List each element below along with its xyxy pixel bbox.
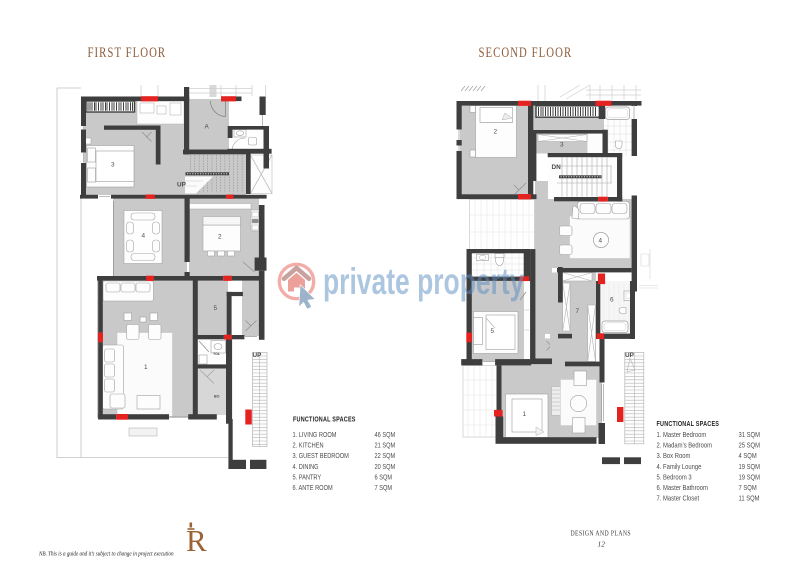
svg-text:4: 4	[599, 238, 603, 245]
svg-text:4. DINING: 4. DINING	[293, 463, 319, 471]
svg-text:TOL: TOL	[213, 352, 221, 356]
svg-text:21 SQM: 21 SQM	[375, 442, 396, 450]
svg-text:11 SQM: 11 SQM	[739, 495, 760, 503]
svg-text:UP: UP	[253, 352, 263, 359]
svg-text:FUNCTIONAL SPACES: FUNCTIONAL SPACES	[657, 420, 720, 428]
svg-text:19 SQM: 19 SQM	[739, 463, 760, 471]
svg-text:7: 7	[576, 308, 580, 315]
svg-text:2. KITCHEN: 2. KITCHEN	[293, 442, 324, 450]
svg-text:7 SQM: 7 SQM	[375, 485, 393, 493]
svg-text:A: A	[205, 124, 210, 131]
svg-text:25 SQM: 25 SQM	[739, 442, 760, 450]
svg-text:4 SQM: 4 SQM	[739, 453, 757, 461]
svg-text:private property: private property	[323, 261, 524, 302]
svg-text:4: 4	[142, 233, 146, 240]
svg-text:NB. This is a guide and it’s s: NB. This is a guide and it’s subject to …	[38, 551, 174, 558]
svg-text:FUNCTIONAL SPACES: FUNCTIONAL SPACES	[293, 416, 356, 424]
svg-text:DESIGN AND PLANS: DESIGN AND PLANS	[571, 530, 632, 538]
svg-text:2: 2	[218, 234, 222, 241]
svg-text:FIRST FLOOR: FIRST FLOOR	[88, 44, 167, 60]
svg-text:6 SQM: 6 SQM	[375, 474, 393, 482]
svg-text:DN: DN	[552, 164, 562, 171]
svg-text:20 SQM: 20 SQM	[375, 463, 396, 471]
svg-text:19 SQM: 19 SQM	[739, 474, 760, 482]
svg-text:3: 3	[111, 162, 115, 169]
svg-text:7 SQM: 7 SQM	[739, 485, 757, 493]
svg-text:7. Master Closet: 7. Master Closet	[657, 495, 700, 503]
svg-text:2. Madam’s Bedroom: 2. Madam’s Bedroom	[657, 442, 713, 450]
svg-text:6. Master Bathroom: 6. Master Bathroom	[657, 485, 708, 493]
svg-text:22 SQM: 22 SQM	[375, 453, 396, 461]
svg-text:6. ANTE ROOM: 6. ANTE ROOM	[293, 485, 333, 493]
svg-text:1: 1	[144, 364, 148, 371]
svg-text:5. Bedroom 3: 5. Bedroom 3	[657, 474, 693, 482]
svg-text:UP: UP	[625, 352, 635, 359]
svg-text:46 SQM: 46 SQM	[375, 432, 396, 440]
svg-text:5: 5	[491, 328, 495, 335]
svg-text:BO: BO	[214, 395, 220, 399]
svg-text:SECOND FLOOR: SECOND FLOOR	[479, 44, 573, 60]
svg-text:5. PANTRY: 5. PANTRY	[293, 474, 322, 482]
svg-text:31 SQM: 31 SQM	[739, 432, 760, 440]
svg-text:1: 1	[523, 411, 527, 418]
svg-text:3: 3	[560, 142, 564, 149]
svg-text:12: 12	[598, 540, 606, 549]
svg-text:2: 2	[494, 129, 498, 136]
svg-text:6: 6	[610, 297, 614, 304]
svg-text:4. Family Lounge: 4. Family Lounge	[657, 463, 702, 471]
svg-text:1. Master Bedroom: 1. Master Bedroom	[657, 432, 707, 440]
svg-text:3. Box Room: 3. Box Room	[657, 453, 691, 461]
svg-text:1. LIVING ROOM: 1. LIVING ROOM	[293, 432, 337, 440]
svg-text:5: 5	[214, 305, 218, 312]
svg-text:UP: UP	[177, 182, 187, 189]
svg-text:3. GUEST BEDROOM: 3. GUEST BEDROOM	[293, 453, 349, 461]
